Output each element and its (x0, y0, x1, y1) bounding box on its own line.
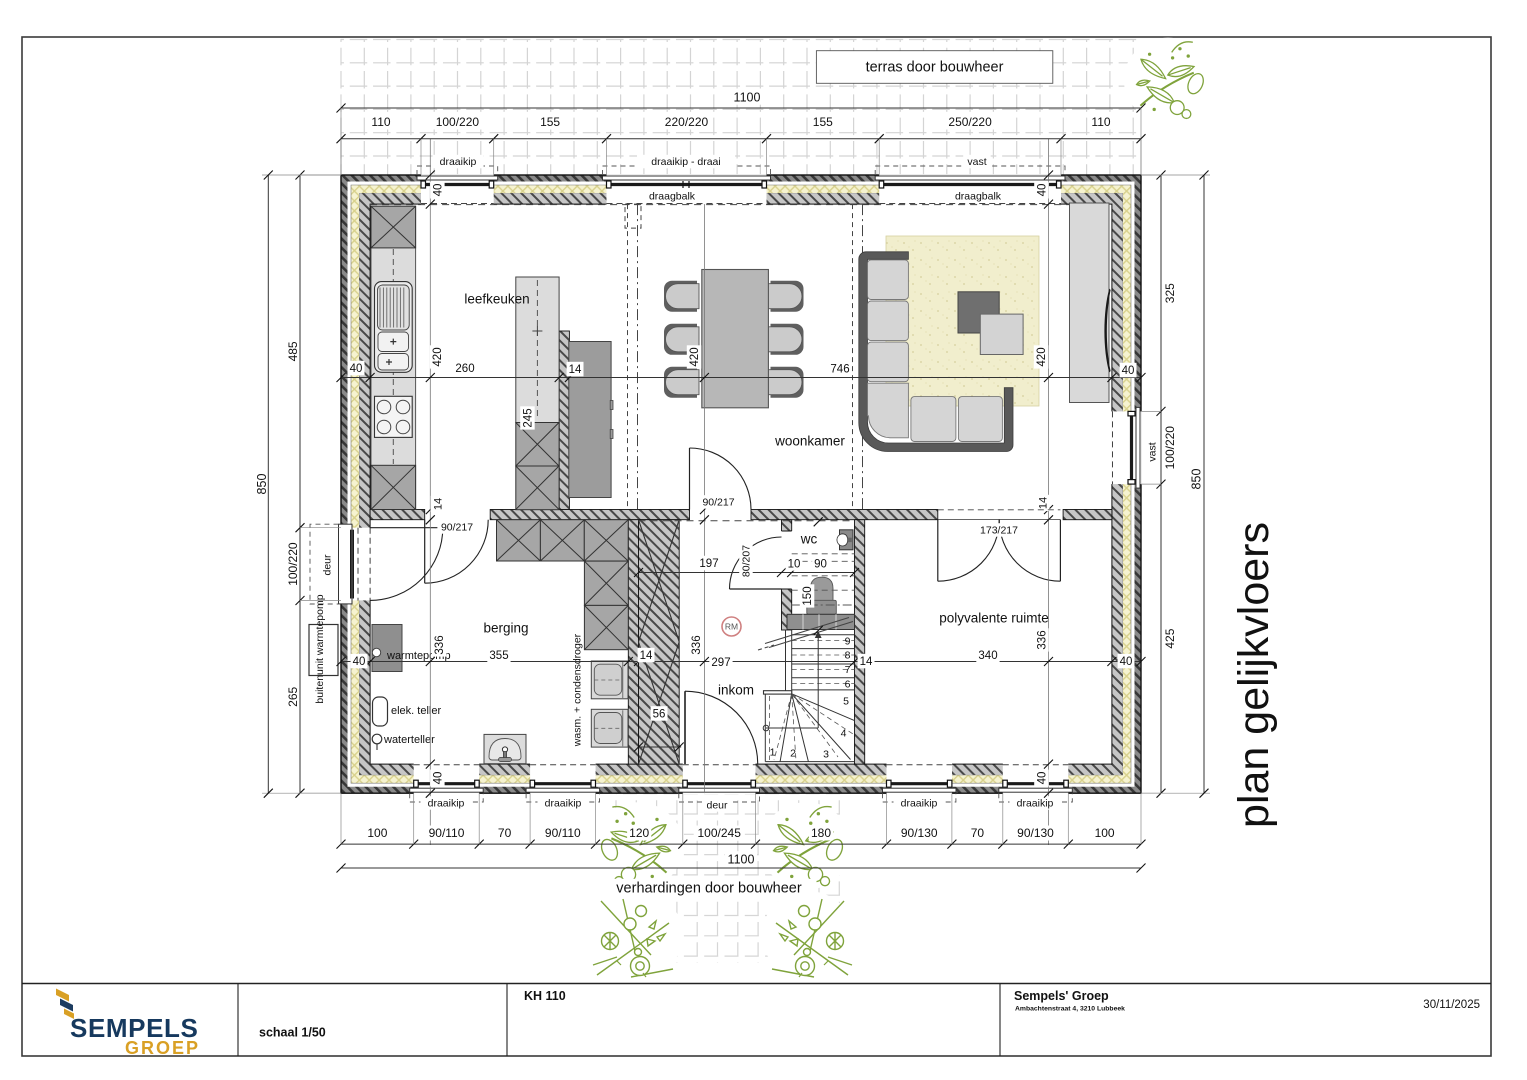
svg-text:40: 40 (432, 184, 444, 197)
svg-text:GROEP: GROEP (125, 1038, 200, 1058)
svg-text:425: 425 (1163, 628, 1177, 648)
svg-text:Sempels' Groep: Sempels' Groep (1014, 989, 1109, 1003)
svg-text:90/130: 90/130 (1017, 826, 1054, 840)
svg-text:260: 260 (455, 363, 474, 375)
svg-text:325: 325 (1163, 283, 1177, 303)
svg-text:250/220: 250/220 (948, 115, 992, 129)
svg-text:5: 5 (843, 696, 849, 708)
svg-text:1: 1 (770, 747, 776, 759)
svg-text:336: 336 (691, 635, 703, 654)
svg-text:2: 2 (790, 748, 796, 760)
svg-text:woonkamer: woonkamer (774, 434, 845, 449)
svg-text:70: 70 (498, 826, 512, 840)
svg-text:terras door bouwheer: terras door bouwheer (866, 60, 1004, 76)
svg-text:90/130: 90/130 (901, 826, 938, 840)
svg-text:220/220: 220/220 (665, 115, 709, 129)
svg-text:draaikip: draaikip (440, 156, 477, 168)
svg-text:berging: berging (483, 621, 528, 636)
svg-text:10: 10 (788, 559, 801, 571)
svg-text:draagbalk: draagbalk (649, 191, 696, 203)
svg-text:14: 14 (432, 498, 444, 510)
svg-text:100: 100 (1095, 826, 1115, 840)
svg-text:deur: deur (706, 800, 728, 812)
svg-text:40: 40 (1037, 184, 1049, 197)
svg-text:1100: 1100 (728, 852, 755, 866)
svg-text:vast: vast (1147, 442, 1159, 461)
svg-text:420: 420 (432, 347, 444, 366)
svg-text:schaal 1/50: schaal 1/50 (259, 1026, 326, 1040)
svg-text:wc: wc (800, 532, 818, 547)
svg-text:draaikip: draaikip (901, 798, 938, 810)
svg-text:173/217: 173/217 (980, 525, 1018, 537)
svg-text:100/220: 100/220 (1163, 426, 1177, 470)
svg-text:14: 14 (640, 650, 653, 662)
svg-text:110: 110 (1091, 115, 1110, 129)
svg-text:40: 40 (432, 772, 444, 785)
svg-text:draaikip: draaikip (545, 798, 582, 810)
svg-text:leefkeuken: leefkeuken (464, 292, 529, 307)
svg-text:80/207: 80/207 (741, 545, 753, 577)
svg-text:elek. teller: elek. teller (391, 705, 441, 717)
svg-text:340: 340 (978, 650, 997, 662)
svg-text:265: 265 (286, 686, 300, 706)
svg-text:100/220: 100/220 (436, 115, 480, 129)
svg-text:850: 850 (1189, 469, 1203, 490)
svg-text:draaikip: draaikip (428, 798, 465, 810)
svg-text:40: 40 (1122, 365, 1135, 377)
svg-text:155: 155 (540, 115, 560, 129)
svg-text:verhardingen door bouwheer: verhardingen door bouwheer (616, 881, 802, 897)
svg-text:deur: deur (322, 554, 334, 576)
svg-text:14: 14 (569, 364, 582, 376)
svg-text:9: 9 (845, 636, 851, 648)
svg-text:297: 297 (711, 657, 730, 669)
svg-text:56: 56 (653, 709, 666, 721)
svg-text:420: 420 (1036, 347, 1048, 366)
svg-text:7: 7 (845, 664, 851, 676)
svg-text:KH 110: KH 110 (524, 989, 566, 1003)
svg-text:4: 4 (841, 728, 847, 740)
svg-text:110: 110 (371, 115, 390, 129)
svg-text:100/245: 100/245 (698, 826, 742, 840)
svg-text:inkom: inkom (718, 683, 754, 698)
svg-text:40: 40 (353, 656, 366, 668)
svg-text:40: 40 (350, 363, 363, 375)
svg-text:245: 245 (523, 408, 535, 427)
svg-text:1100: 1100 (734, 90, 761, 104)
svg-text:485: 485 (286, 341, 300, 361)
svg-text:90/217: 90/217 (702, 497, 734, 509)
svg-text:850: 850 (255, 474, 269, 495)
svg-text:buitenunit warmtepomp: buitenunit warmtepomp (314, 594, 326, 703)
svg-text:14: 14 (860, 656, 873, 668)
svg-text:90/110: 90/110 (545, 826, 581, 840)
svg-text:40: 40 (1120, 656, 1133, 668)
svg-text:plan gelijkvloers: plan gelijkvloers (1230, 522, 1278, 828)
svg-text:RM: RM (725, 622, 738, 632)
svg-text:waterteller: waterteller (383, 734, 435, 746)
svg-text:6: 6 (845, 679, 851, 691)
svg-text:355: 355 (489, 650, 508, 662)
svg-text:100: 100 (367, 826, 387, 840)
svg-text:420: 420 (689, 347, 701, 366)
svg-text:336: 336 (1037, 630, 1049, 649)
svg-text:70: 70 (971, 826, 985, 840)
svg-text:draaikip: draaikip (1017, 798, 1054, 810)
svg-text:180: 180 (811, 826, 831, 840)
svg-text:30/11/2025: 30/11/2025 (1423, 999, 1480, 1011)
svg-text:90/217: 90/217 (441, 522, 473, 534)
svg-text:90: 90 (814, 559, 827, 571)
svg-text:155: 155 (813, 115, 833, 129)
svg-text:40: 40 (1037, 772, 1049, 785)
svg-text:vast: vast (967, 156, 986, 168)
svg-text:Ambachtenstraat 4, 3210 Lubbee: Ambachtenstraat 4, 3210 Lubbeek (1015, 1006, 1125, 1013)
svg-text:150: 150 (802, 586, 814, 605)
svg-text:draagbalk: draagbalk (955, 191, 1002, 203)
svg-text:8: 8 (845, 650, 851, 662)
svg-text:120: 120 (629, 826, 649, 840)
svg-text:336: 336 (434, 635, 446, 654)
svg-text:14: 14 (1037, 497, 1049, 509)
svg-text:100/220: 100/220 (286, 542, 300, 586)
svg-text:90/110: 90/110 (429, 826, 465, 840)
svg-text:197: 197 (699, 558, 718, 570)
svg-text:3: 3 (823, 749, 829, 761)
svg-text:wasm. + condensdroger: wasm. + condensdroger (572, 633, 584, 747)
svg-text:746: 746 (830, 364, 849, 376)
svg-text:polyvalente ruimte: polyvalente ruimte (939, 611, 1049, 626)
svg-text:draaikip - draai: draaikip - draai (651, 156, 720, 168)
